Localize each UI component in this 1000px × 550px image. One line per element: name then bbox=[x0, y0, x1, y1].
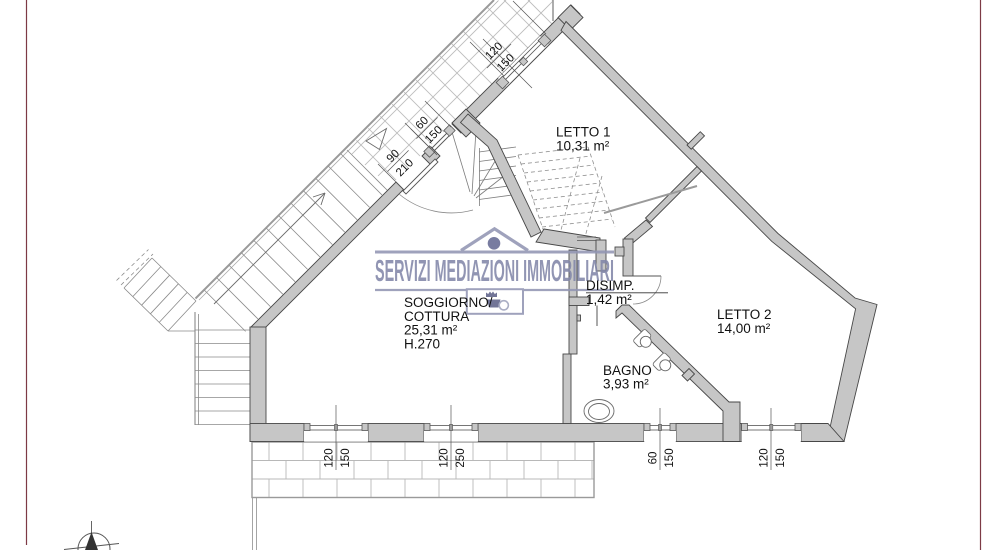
svg-text:120: 120 bbox=[324, 448, 336, 467]
svg-text:120: 120 bbox=[439, 448, 451, 467]
svg-text:10,31 m²: 10,31 m² bbox=[556, 139, 610, 154]
svg-text:150: 150 bbox=[664, 448, 676, 467]
svg-text:120: 120 bbox=[759, 448, 771, 467]
svg-text:1,42 m²: 1,42 m² bbox=[586, 292, 632, 307]
svg-text:25,31 m²: 25,31 m² bbox=[404, 323, 458, 338]
svg-text:DISIMP.: DISIMP. bbox=[586, 278, 635, 293]
svg-text:3,93 m²: 3,93 m² bbox=[603, 377, 649, 392]
svg-text:250: 250 bbox=[455, 448, 467, 467]
svg-text:SOGGIORNO/: SOGGIORNO/ bbox=[404, 295, 493, 310]
svg-text:150: 150 bbox=[775, 448, 787, 467]
svg-text:LETTO 2: LETTO 2 bbox=[717, 307, 772, 322]
svg-text:150: 150 bbox=[340, 448, 352, 467]
svg-text:LETTO 1: LETTO 1 bbox=[556, 125, 611, 140]
svg-text:60: 60 bbox=[648, 452, 660, 465]
svg-text:14,00 m²: 14,00 m² bbox=[717, 321, 771, 336]
svg-text:SERVIZI MEDIAZIONI IMMOBILIARI: SERVIZI MEDIAZIONI IMMOBILIARI bbox=[375, 253, 614, 288]
svg-text:H.270: H.270 bbox=[404, 337, 440, 352]
